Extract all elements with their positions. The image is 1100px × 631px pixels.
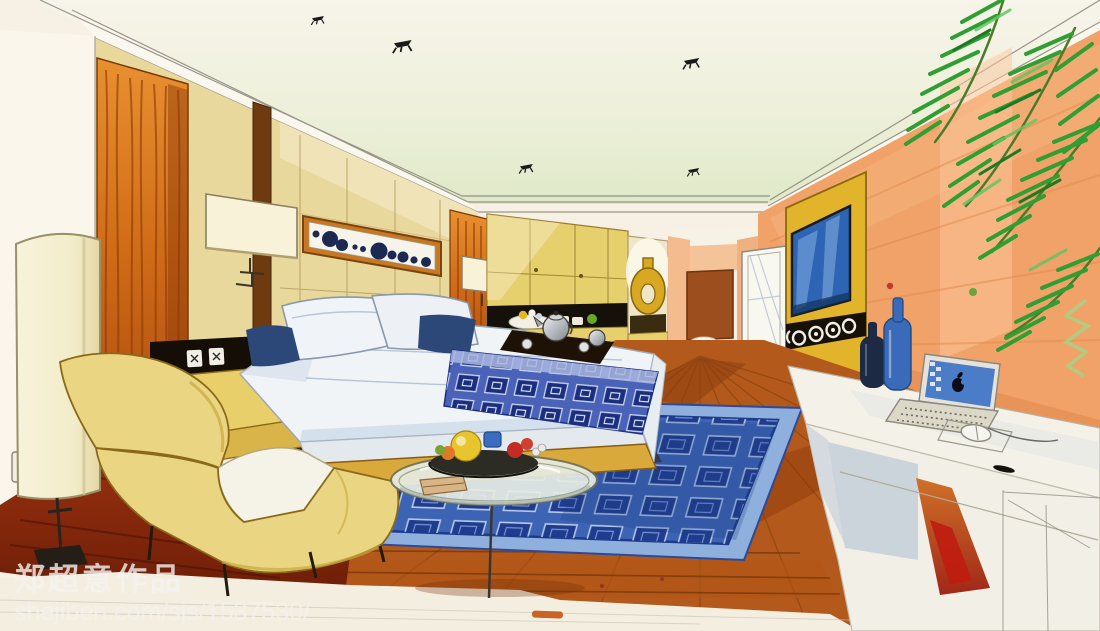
marker-rendering-canvas: 郑超意作品 shejiben.com/sjs/1537530/ — [0, 0, 1100, 631]
watermark-artist: 郑超意作品 — [14, 562, 184, 597]
watermark-url: shejiben.com/sjs/1537530/ — [14, 598, 310, 626]
pillow-navy-left — [246, 325, 300, 366]
blue-bottle — [884, 318, 911, 390]
green-spatter — [969, 288, 977, 296]
pillow-navy-right — [418, 315, 476, 354]
kettle-small — [589, 330, 605, 346]
navy-bottle — [860, 336, 886, 388]
fruit-red — [507, 442, 523, 458]
green-apple — [587, 314, 597, 324]
corridor-door — [687, 270, 733, 340]
fruit-blue — [484, 432, 501, 447]
vase-niche — [626, 236, 670, 358]
fruit-yellow — [451, 431, 481, 461]
red-spatter — [887, 283, 893, 289]
